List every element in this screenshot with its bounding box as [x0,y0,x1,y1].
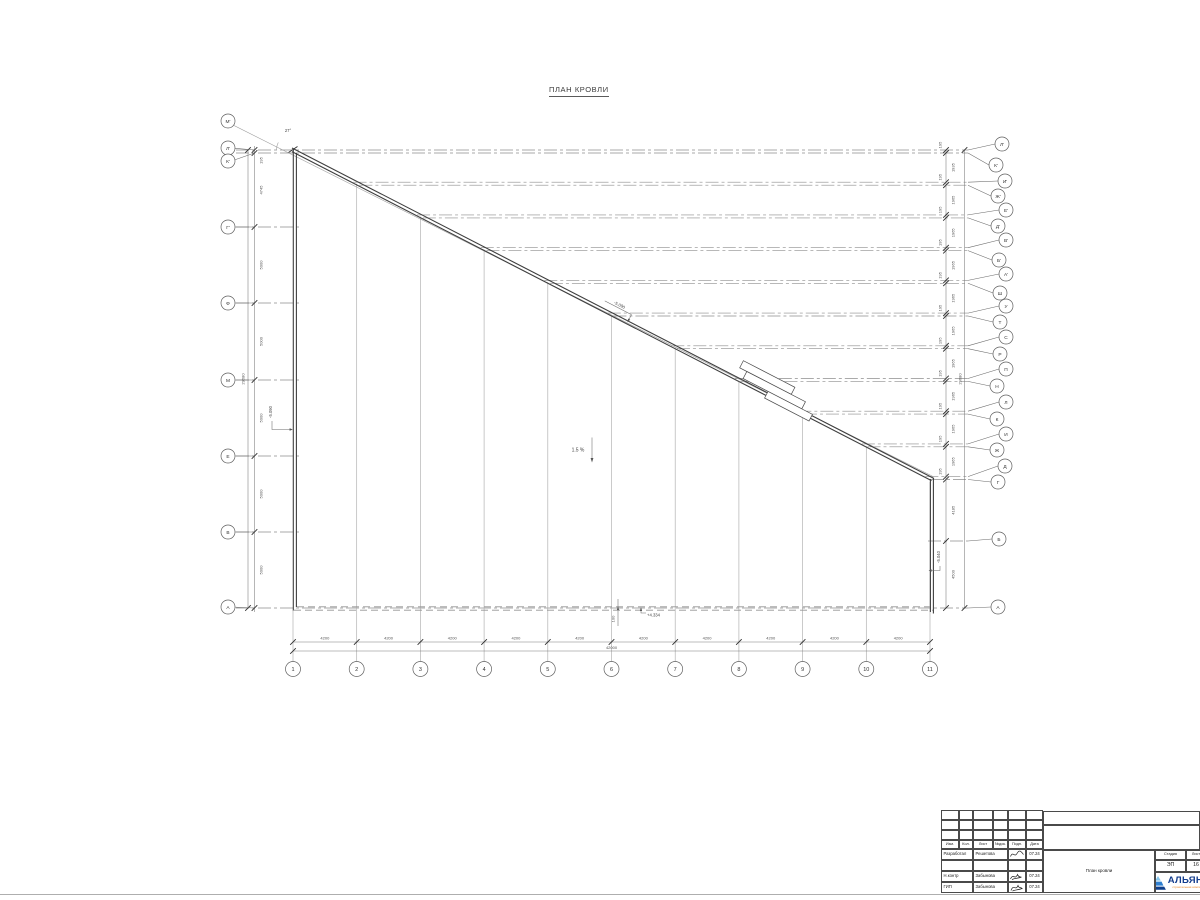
axis-bubble-label: И [1004,432,1008,438]
axis-bubble-label: 11 [927,667,933,673]
axis-bubble-label: Л' [1000,142,1004,148]
total-dim-label: 42000 [606,645,618,650]
axis-bubble-label: П [1004,367,1008,373]
axis-leader [968,144,995,150]
bay-dim-label: 4200 [766,636,776,641]
elevation-leader [629,315,631,319]
roof-steps-detail [733,361,820,421]
axis-bubble-label: Г [997,480,1000,486]
axis-leader [968,480,991,483]
axis-bubble-label: М [226,378,230,384]
elevation-label: -5.040 [936,550,941,563]
right-dim-label: 1965 [951,326,956,336]
axis-bubble-label: 9 [801,667,804,673]
axis-bubble-label: Н [995,384,999,390]
elevation-label: +4.334 [647,613,661,618]
angle-label: 27° [285,128,292,133]
right-dim-label: 1965 [951,358,956,368]
elevation-leader [272,421,290,430]
axis-leader [968,434,999,444]
axis-leader [968,283,993,293]
sheet-border-bottom [0,894,1200,895]
axis-bubble-label: 8 [737,667,740,673]
axis-bubble-label: 4 [483,667,486,673]
elevation-label: -5.090 [268,405,273,418]
right-dim-label: 195 [938,141,943,148]
right-dim-label: 1935 [951,162,956,172]
axis-bubble-label: Ж' [995,194,1000,200]
right-dim-label: 1965 [951,195,956,205]
right-dim-label: 1965 [951,293,956,303]
axis-leader [235,153,255,160]
left-dim-label: 5000 [259,260,264,270]
axis-leader [968,466,998,477]
right-dim-label: 1965 [951,260,956,270]
axis-leader [968,414,990,419]
axis-bubble-label: 2 [355,667,358,673]
right-dim-label: 195 [938,304,943,311]
left-dim-label: 5000 [259,413,264,423]
axis-bubble-label: К [996,417,999,423]
slope-arrow-head [591,458,594,463]
axis-bubble-label: 7 [674,667,677,673]
angle-arc [277,143,279,151]
axis-bubble-label: А' [1004,272,1008,278]
right-dim-label: 195 [938,239,943,246]
axis-leader [968,337,999,346]
axis-bubble-label: 6 [610,667,613,673]
elevation-arrow [290,428,293,430]
offset-dim-label: 100 [611,615,616,622]
axis-leader [968,539,992,541]
axis-leader [968,316,993,322]
axis-bubble-label: Ф [226,301,230,307]
axis-bubble-label: Ш [998,291,1002,297]
bay-dim-label: 4200 [894,636,904,641]
axis-bubble-label: Л [1004,400,1007,406]
left-dim-label: 5000 [259,336,264,346]
axis-bubble-label: В' [1004,238,1008,244]
axis-bubble-label: Л' [226,146,230,152]
axis-leader [968,185,991,196]
axis-bubble-label: Г' [226,225,230,231]
left-dim-label: 5000 [259,489,264,499]
right-dim-label: 195 [938,271,943,278]
left-dim-label: 4745 [259,185,264,195]
right-dim-label: 195 [938,467,943,474]
left-dim-label: 195 [259,156,264,163]
slope-label: 1.5 % [572,448,585,454]
axis-leader [968,251,992,260]
axis-bubble-label: Б' [997,258,1001,264]
axis-bubble-label: 1 [291,667,294,673]
axis-bubble-label: Р [998,352,1001,358]
right-dim-label: 195 [938,337,943,344]
axis-bubble-label: Б [997,537,1000,543]
bay-dim-label: 4200 [320,636,330,641]
axis-bubble-label: И' [1003,179,1007,185]
right-dim-label: 195 [938,173,943,180]
right-dim-label: 4500 [951,569,956,579]
axis-bubble-label: Е' [1004,208,1008,214]
axis-leader [968,381,990,386]
right-dim-label: 1965 [951,456,956,466]
axis-bubble-label: 5 [546,667,549,673]
axis-leader [968,306,999,313]
roof-plan-drawing: 4200420042004200420042004200420042004200… [0,0,1200,900]
bay-dim-label: 4200 [511,636,521,641]
axis-bubble-label: С [1004,335,1008,341]
right-dim-label: 195 [938,435,943,442]
axis-leader [968,181,998,182]
axis-leader [968,274,999,280]
right-dim-label: 1965 [951,391,956,401]
axis-leader [968,447,990,450]
elevation-leader [931,566,940,571]
axis-bubble-label: К' [226,159,230,165]
right-dim-label: 1965 [951,228,956,238]
axis-leader [968,153,989,165]
right-dim-label: 195 [938,402,943,409]
right-dim-label: 195 [938,369,943,376]
bay-dim-label: 4200 [703,636,713,641]
bay-dim-label: 4200 [448,636,458,641]
axis-leader [968,369,999,379]
left-total-label: 29680 [241,373,246,385]
axis-bubble-label: 3 [419,667,422,673]
axis-bubble-label: Д' [996,224,1000,230]
axis-leader [968,349,993,354]
bay-dim-label: 4200 [639,636,649,641]
axis-leader [968,607,991,608]
right-total-label: 29680 [958,373,963,385]
axis-leader [968,210,999,215]
axis-bubble-label: Т [999,320,1002,326]
axis-bubble-label: Ж [995,448,1000,454]
right-dim-label: 4185 [951,505,956,515]
axis-bubble-label: В [226,530,229,536]
axis-bubble-label: 10 [863,667,869,673]
bay-dim-label: 4200 [384,636,394,641]
right-dim-label: 195 [938,206,943,213]
axis-bubble-label: М' [226,119,231,125]
axis-leader [968,240,999,248]
axis-bubble-label: К' [994,163,998,169]
drawing-sheet: { "title": "ПЛАН КРОВЛИ", "annotations":… [0,0,1200,900]
right-dim-label: 1965 [951,424,956,434]
bay-dim-label: 4200 [575,636,585,641]
axis-bubble-label: Е [226,454,229,460]
left-dim-label: 5000 [259,565,264,575]
axis-leader [968,402,999,411]
bay-dim-label: 4200 [830,636,840,641]
axis-leader [968,218,991,226]
